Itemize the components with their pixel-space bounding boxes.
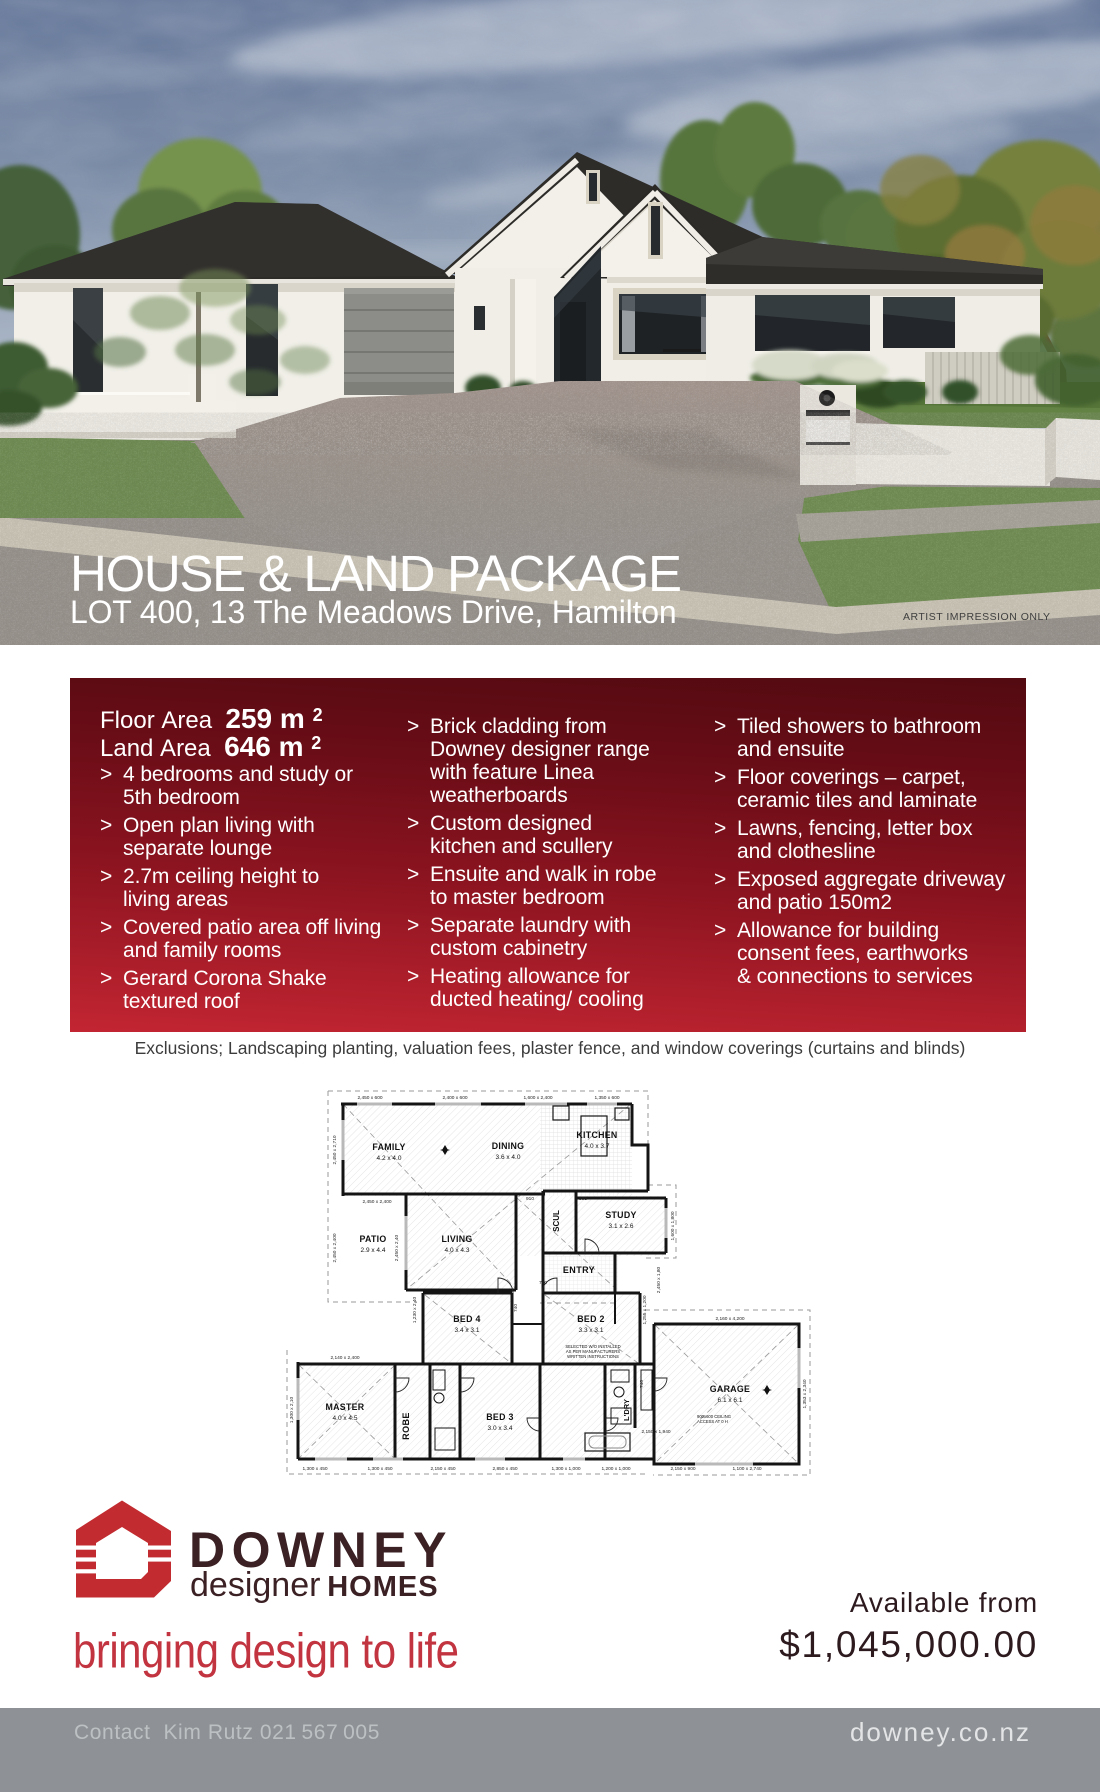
svg-text:2,450 x 2,710: 2,450 x 2,710 bbox=[332, 1135, 338, 1164]
svg-text:1,100 x 2,740: 1,100 x 2,740 bbox=[732, 1466, 761, 1472]
svg-text:2,150 x 450: 2,150 x 450 bbox=[430, 1466, 455, 1472]
svg-text:LIVING: LIVING bbox=[441, 1234, 472, 1244]
svg-text:1,300 x 1,000: 1,300 x 1,000 bbox=[551, 1466, 580, 1472]
svg-text:2,850 x 450: 2,850 x 450 bbox=[492, 1466, 517, 1472]
svg-text:2,140 x 2,400: 2,140 x 2,400 bbox=[330, 1355, 359, 1361]
svg-text:1,230 x 2,40: 1,230 x 2,40 bbox=[412, 1296, 418, 1323]
svg-text:2,450 x 1,80: 2,450 x 1,80 bbox=[656, 1266, 662, 1293]
svg-text:KITCHEN: KITCHEN bbox=[576, 1130, 617, 1140]
svg-text:4.0 x 4.3: 4.0 x 4.3 bbox=[445, 1247, 470, 1254]
svg-text:2.9 x 4.4: 2.9 x 4.4 bbox=[361, 1247, 386, 1254]
svg-text:4.2 x 4.0: 4.2 x 4.0 bbox=[377, 1155, 402, 1162]
svg-text:BED 3: BED 3 bbox=[486, 1412, 513, 1422]
svg-text:4.0 x 3.7: 4.0 x 3.7 bbox=[585, 1143, 610, 1150]
svg-text:DINING: DINING bbox=[492, 1141, 525, 1151]
svg-text:1,255 x 1,200: 1,255 x 1,200 bbox=[642, 1295, 648, 1324]
svg-text:2,150 x 1,940: 2,150 x 1,940 bbox=[641, 1429, 670, 1435]
svg-text:3.3 x 3.1: 3.3 x 3.1 bbox=[579, 1327, 604, 1334]
svg-text:MASTER: MASTER bbox=[326, 1402, 365, 1412]
svg-text:1,600 x 1,800: 1,600 x 1,800 bbox=[670, 1211, 676, 1240]
svg-text:1,200 x 1,000: 1,200 x 1,000 bbox=[601, 1466, 630, 1472]
svg-text:1,600 x 2,400: 1,600 x 2,400 bbox=[523, 1095, 552, 1101]
svg-text:1,300 x 450: 1,300 x 450 bbox=[367, 1466, 392, 1472]
svg-text:L'DRY: L'DRY bbox=[622, 1399, 631, 1421]
svg-text:2,150 x 900: 2,150 x 900 bbox=[670, 1466, 695, 1472]
svg-text:4.0 x 4.5: 4.0 x 4.5 bbox=[333, 1415, 358, 1422]
svg-text:1,353 x 2,340: 1,353 x 2,340 bbox=[802, 1379, 808, 1408]
svg-text:905: 905 bbox=[579, 1196, 587, 1202]
svg-text:STUDY: STUDY bbox=[605, 1210, 636, 1220]
svg-text:3.4 x 3.1: 3.4 x 3.1 bbox=[455, 1327, 480, 1334]
svg-text:2,450 x 600: 2,450 x 600 bbox=[357, 1095, 382, 1101]
svg-text:740: 740 bbox=[539, 1280, 547, 1286]
svg-text:SCUL: SCUL bbox=[552, 1210, 561, 1232]
svg-text:1,350 x 600: 1,350 x 600 bbox=[594, 1095, 619, 1101]
svg-text:2,400 x 600: 2,400 x 600 bbox=[442, 1095, 467, 1101]
svg-text:BED 2: BED 2 bbox=[577, 1314, 604, 1324]
svg-text:3.0 x 3.4: 3.0 x 3.4 bbox=[488, 1425, 513, 1432]
svg-text:6.1 x 6.1: 6.1 x 6.1 bbox=[718, 1397, 743, 1404]
svg-text:ACCESS AT 0 H: ACCESS AT 0 H bbox=[697, 1419, 728, 1424]
svg-text:WRITTEN INSTRUCTIONS: WRITTEN INSTRUCTIONS bbox=[567, 1354, 619, 1359]
svg-text:1,300 x 2,10: 1,300 x 2,10 bbox=[289, 1396, 295, 1423]
svg-text:GARAGE: GARAGE bbox=[710, 1384, 750, 1394]
svg-text:2,160 x 4,200: 2,160 x 4,200 bbox=[715, 1316, 744, 1322]
svg-text:2,450 x 2,400: 2,450 x 2,400 bbox=[362, 1199, 391, 1205]
svg-text:910: 910 bbox=[526, 1196, 534, 1202]
svg-text:1,300 x 450: 1,300 x 450 bbox=[302, 1466, 327, 1472]
svg-text:ROBE: ROBE bbox=[401, 1412, 411, 1440]
svg-text:740: 740 bbox=[639, 1380, 645, 1388]
svg-text:2,450 x 2,40: 2,450 x 2,40 bbox=[394, 1234, 400, 1261]
svg-text:3.1 x 2.6: 3.1 x 2.6 bbox=[609, 1223, 634, 1230]
svg-text:BED 4: BED 4 bbox=[453, 1314, 480, 1324]
svg-text:740: 740 bbox=[513, 1304, 519, 1312]
svg-text:ENTRY: ENTRY bbox=[563, 1265, 595, 1275]
svg-text:FAMILY: FAMILY bbox=[372, 1142, 405, 1152]
svg-text:2,450 x 2,400: 2,450 x 2,400 bbox=[332, 1233, 338, 1262]
svg-text:PATIO: PATIO bbox=[359, 1234, 386, 1244]
svg-text:3.6 x 4.0: 3.6 x 4.0 bbox=[496, 1154, 521, 1161]
